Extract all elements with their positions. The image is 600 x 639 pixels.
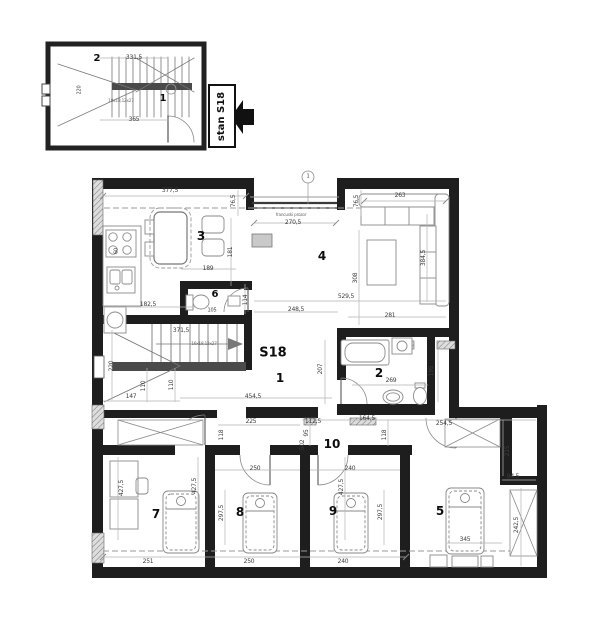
room-label-10: 10 (324, 438, 341, 450)
inset-stair-note: 19x18,12x27 (108, 99, 133, 103)
dim-label: 427,5 (192, 478, 198, 494)
room7-desk (110, 461, 148, 529)
dim-label: 502 (300, 440, 306, 451)
dim-label: 164,5 (359, 416, 375, 422)
inset-dim-label: 220 (78, 86, 83, 95)
dim-label: 248,5 (288, 307, 304, 313)
inset-dim-label: 365 (129, 117, 140, 123)
room-label-6: 6 (212, 290, 219, 300)
dim-label: 263 (395, 193, 406, 199)
dim-label: 225 (246, 419, 257, 425)
sofa-set (359, 194, 449, 306)
dim-label: 105 (208, 309, 217, 314)
dim-label: 114 (243, 295, 249, 306)
floor-plan-page: 2 331,5 1 220 19x18,12x27 365 stan S18 3… (0, 0, 600, 639)
dim-label: 110 (141, 381, 147, 392)
dim-label: 454,5 (245, 394, 261, 400)
stair-note-label: 16x18,12x27 (191, 342, 216, 346)
dim-label: 60 (115, 248, 120, 254)
dim-label: 427,5 (119, 480, 125, 496)
inset-dim-label: 331,5 (126, 55, 142, 61)
dim-label: 529,5 (338, 294, 354, 300)
dim-label: 345 (460, 537, 471, 543)
dim-label: 94,5 (507, 474, 520, 480)
dim-label: 240 (338, 559, 349, 565)
dim-label: 250 (250, 466, 261, 472)
dim-label: 242,5 (514, 517, 520, 533)
dim-label: 427,5 (339, 479, 345, 495)
dim-label: 308 (353, 273, 359, 284)
dim-label: 118 (382, 430, 388, 441)
wall-niche (94, 356, 104, 378)
unit-badge: stan S18 (208, 84, 236, 148)
dim-label: 251 (143, 559, 154, 565)
dim-label: 215 (505, 446, 511, 457)
room-label-1: 1 (276, 372, 284, 384)
french-window-label: francuski prozor (276, 213, 307, 217)
dim-label: 76,5 (231, 195, 237, 208)
room-label-3: 3 (197, 230, 205, 242)
inset-wall-niche (42, 96, 50, 106)
dim-label: 220 (109, 361, 115, 372)
room-label-7: 7 (152, 508, 160, 520)
dining-set (145, 208, 224, 268)
dresser (252, 234, 272, 247)
inset-plan (42, 44, 204, 148)
dim-label: 181 (228, 247, 234, 258)
floor-plan-drawing (0, 0, 600, 639)
dim-label: 384,5 (421, 250, 427, 266)
dim-label: 281 (385, 313, 396, 319)
inset-room-label: 2 (94, 54, 101, 64)
dim-label: 110 (169, 380, 175, 391)
dim-label: 297,5 (219, 505, 225, 521)
dim-label: 250 (244, 559, 255, 565)
dim-label: 377,5 (162, 188, 178, 194)
room-label-2: 2 (375, 367, 383, 379)
dim-label: 207 (318, 364, 324, 375)
dim-label: 195 (429, 366, 435, 377)
dim-label: 270,5 (285, 220, 301, 226)
dim-label: 182,5 (140, 302, 156, 308)
room-label-9: 9 (329, 505, 337, 517)
ref-mark-label: 1 (307, 175, 310, 180)
inset-door-arc (168, 116, 194, 142)
room-label-5: 5 (436, 505, 444, 517)
dim-label: 254,5 (436, 421, 452, 427)
unit-label: S18 (259, 347, 286, 360)
room-label-8: 8 (236, 506, 244, 518)
dim-label: 240 (345, 466, 356, 472)
inset-room-label: 1 (160, 94, 167, 104)
room-label-4: 4 (318, 250, 326, 262)
dim-label: 371,5 (173, 328, 189, 334)
dim-label: 269 (386, 378, 397, 384)
dim-label: 95 (304, 429, 310, 436)
dim-label: 189 (203, 266, 214, 272)
dim-label: 147 (126, 394, 137, 400)
dim-label: 118 (219, 430, 225, 441)
dim-label: 76,5 (354, 195, 360, 208)
dim-label: 297,5 (378, 504, 384, 520)
french-window (250, 197, 339, 208)
dim-label: 112,5 (305, 419, 321, 425)
inset-wall-niche (42, 84, 50, 94)
